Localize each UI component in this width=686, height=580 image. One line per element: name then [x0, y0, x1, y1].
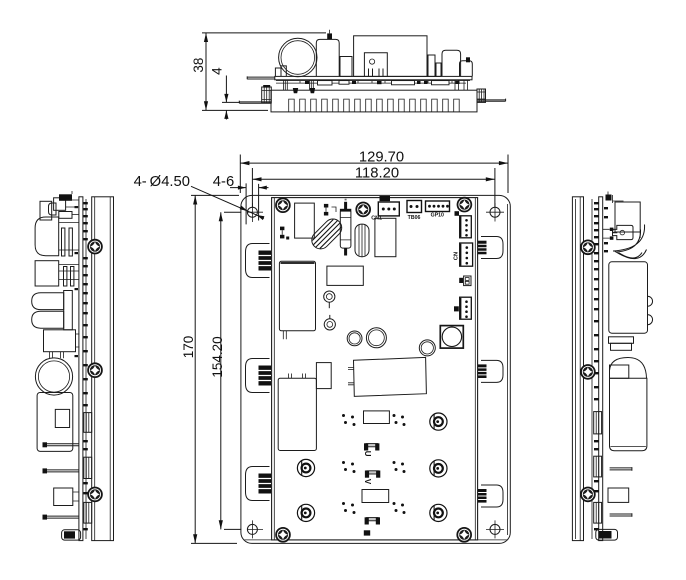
svg-text:170: 170 — [181, 336, 196, 359]
svg-text:4-6: 4-6 — [213, 174, 234, 190]
svg-text:154.20: 154.20 — [210, 336, 225, 377]
svg-text:4- Ø4.50: 4- Ø4.50 — [134, 174, 190, 190]
svg-text:GP10: GP10 — [431, 213, 444, 219]
svg-text:TB06: TB06 — [408, 215, 421, 221]
svg-text:CN: CN — [453, 252, 459, 260]
svg-text:V: V — [363, 479, 372, 485]
svg-text:38: 38 — [191, 58, 206, 73]
svg-text:U: U — [363, 451, 372, 457]
svg-text:129.70: 129.70 — [359, 149, 404, 165]
svg-text:118.20: 118.20 — [355, 165, 399, 181]
svg-text:4: 4 — [210, 67, 225, 75]
